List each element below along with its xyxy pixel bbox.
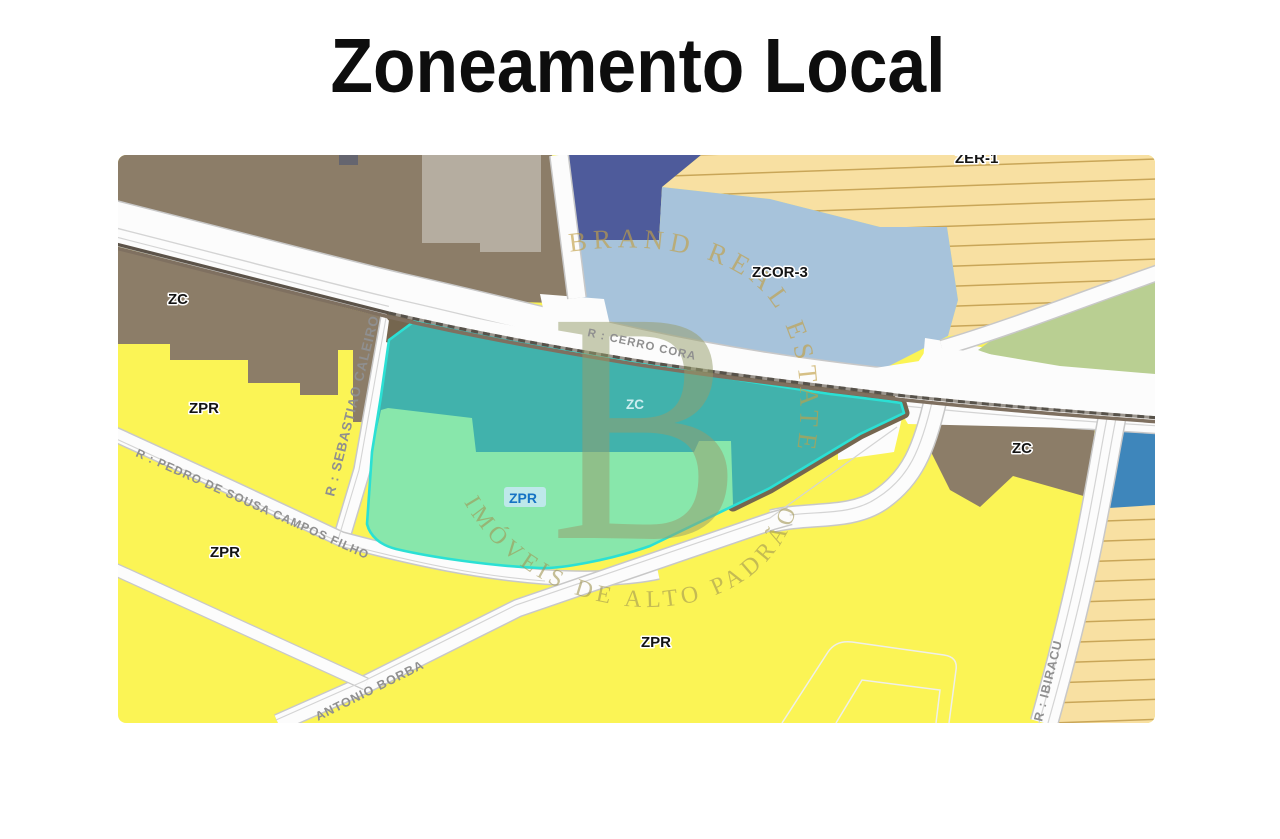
svg-text:ZC: ZC (626, 397, 644, 412)
svg-text:B: B (550, 244, 741, 610)
svg-text:ZPR: ZPR (210, 544, 240, 561)
svg-text:ZPR: ZPR (509, 490, 537, 506)
svg-text:ZC: ZC (168, 291, 188, 308)
svg-text:ZPR: ZPR (641, 634, 671, 651)
svg-text:Zoneamento Local: Zoneamento Local (331, 23, 946, 109)
svg-text:ZPR: ZPR (189, 400, 219, 417)
svg-text:ZER-1: ZER-1 (955, 150, 998, 167)
svg-text:ZC: ZC (1012, 440, 1032, 457)
svg-text:ZCOR-3: ZCOR-3 (752, 264, 808, 281)
